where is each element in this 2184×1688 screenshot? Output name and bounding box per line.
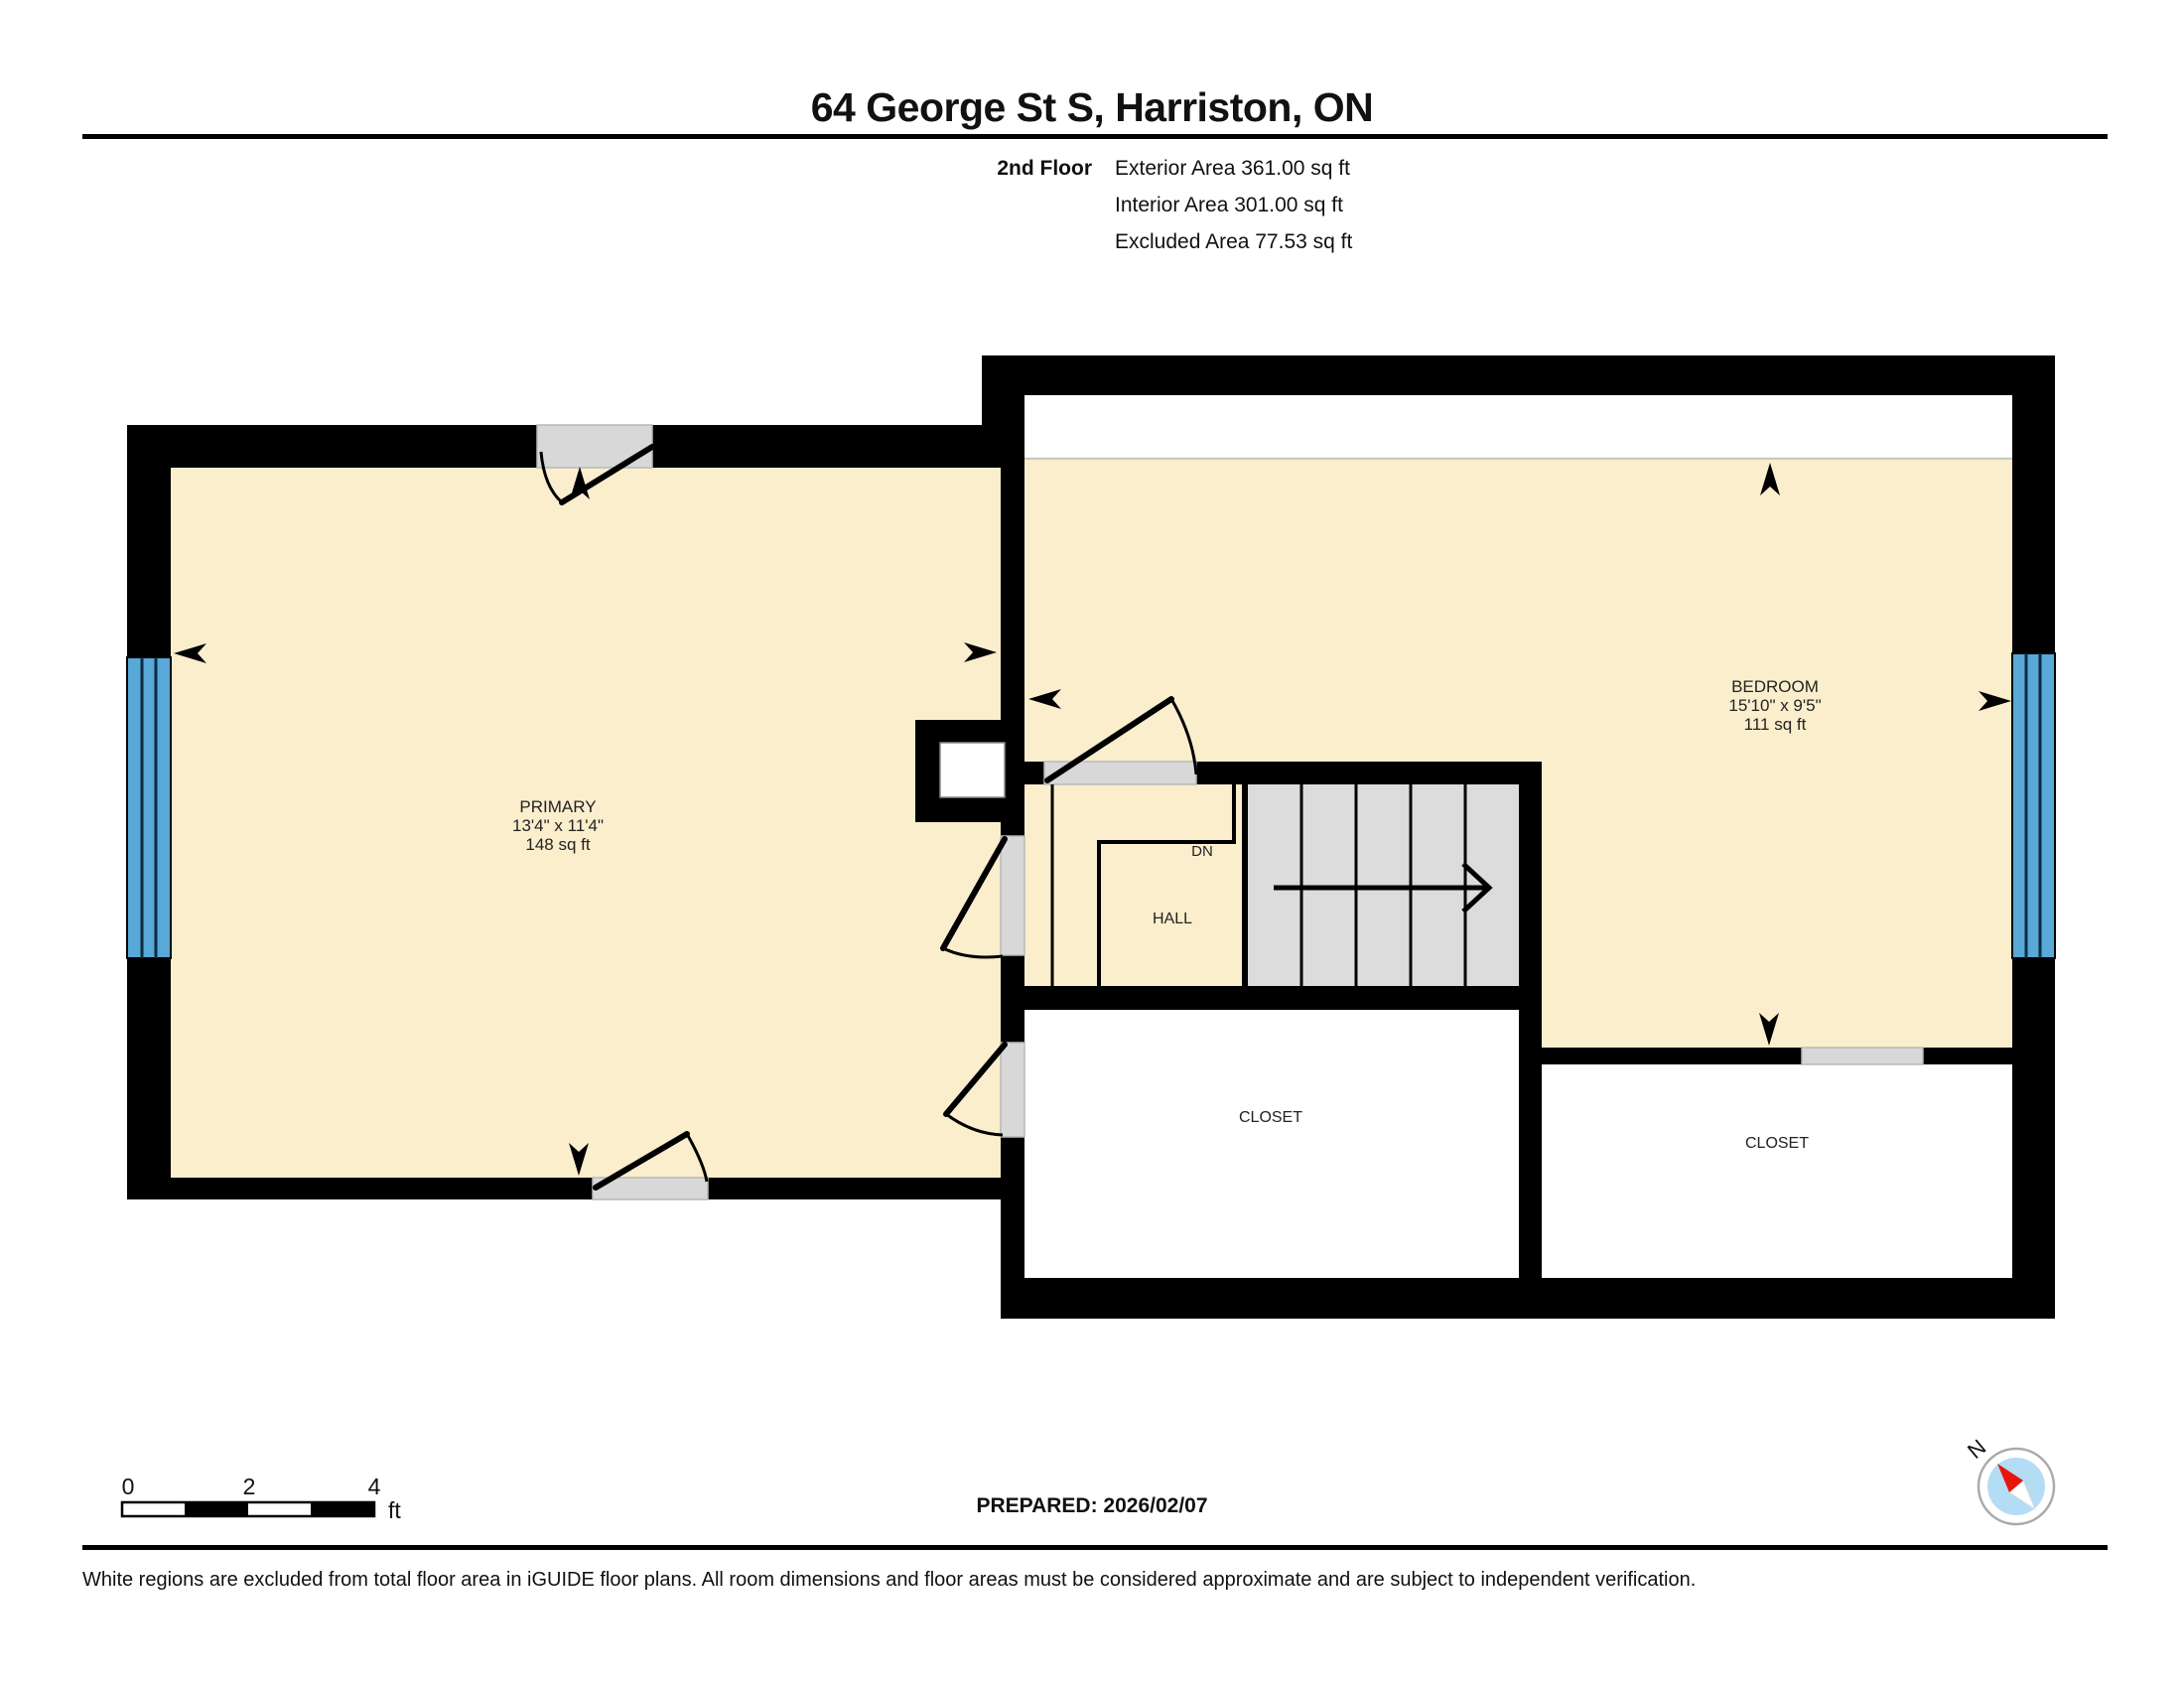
interior-area-label: Interior Area 301.00 sq ft bbox=[1115, 194, 1343, 216]
prepared-date-label: PREPARED: 2026/02/07 bbox=[976, 1494, 1207, 1517]
stairs-down-label: DN bbox=[1191, 843, 1213, 860]
closet-right-name: CLOSET bbox=[1745, 1135, 1809, 1152]
hall-room-name: HALL bbox=[1153, 911, 1192, 927]
hall-bottom-wall bbox=[1023, 986, 1519, 1010]
primary-room-area: 148 sq ft bbox=[525, 835, 590, 854]
scale-tick-4: 4 bbox=[368, 1474, 381, 1499]
compass-icon: N bbox=[1963, 1435, 2054, 1524]
page-title: 64 George St S, Harriston, ON bbox=[811, 84, 1374, 130]
primary-room-dimensions: 13'4" x 11'4" bbox=[512, 816, 604, 835]
closet-center-name: CLOSET bbox=[1239, 1109, 1302, 1126]
scale-tick-2: 2 bbox=[243, 1474, 256, 1499]
bedroom-fill-arm bbox=[1542, 460, 2012, 1048]
primary-window bbox=[127, 657, 171, 958]
scale-bar-segment bbox=[311, 1502, 374, 1516]
bedroom-window bbox=[2012, 653, 2055, 958]
primary-right-door-opening-upper bbox=[1001, 836, 1024, 955]
scale-tick-0: 0 bbox=[122, 1474, 135, 1499]
hall-fill bbox=[1024, 784, 1246, 986]
primary-room-name: PRIMARY bbox=[519, 797, 596, 816]
stair-left-edge bbox=[1242, 784, 1248, 986]
disclaimer-text: White regions are excluded from total fl… bbox=[82, 1569, 1696, 1591]
scale-bar-segment bbox=[185, 1502, 248, 1516]
closet-right-door-opening bbox=[1802, 1048, 1923, 1064]
primary-top-door-opening bbox=[537, 425, 652, 468]
footer-divider bbox=[82, 1545, 2108, 1550]
primary-right-door-opening-lower bbox=[1001, 1043, 1024, 1137]
compass-north-label: N bbox=[1963, 1435, 1990, 1464]
floorplan-canvas: 64 George St S, Harriston, ON 2nd Floor … bbox=[0, 0, 2184, 1688]
header-divider bbox=[82, 134, 2108, 139]
scale-bar: 0 2 4 ft bbox=[122, 1474, 402, 1523]
chimney-flue bbox=[940, 743, 1005, 797]
closet-right-top-wall bbox=[1542, 1048, 2012, 1064]
bedroom-room-dimensions: 15'10" x 9'5" bbox=[1728, 696, 1821, 715]
bedroom-room-name: BEDROOM bbox=[1731, 677, 1819, 696]
stair-right-wall bbox=[1519, 762, 1542, 1278]
floorplan-page: { "page": { "title": "64 George St S, Ha… bbox=[0, 0, 2184, 1688]
excluded-area-label: Excluded Area 77.53 sq ft bbox=[1115, 230, 1352, 253]
floor-label: 2nd Floor bbox=[997, 157, 1092, 180]
exterior-area-label: Exterior Area 361.00 sq ft bbox=[1115, 157, 1350, 180]
closet-right-fill bbox=[1542, 1064, 2012, 1278]
bedroom-room-area: 111 sq ft bbox=[1744, 715, 1807, 734]
scale-unit-label: ft bbox=[388, 1497, 401, 1523]
closet-center-fill bbox=[1024, 1010, 1519, 1278]
excluded-area-strip bbox=[1024, 395, 2012, 460]
room-fills bbox=[171, 395, 2012, 1278]
